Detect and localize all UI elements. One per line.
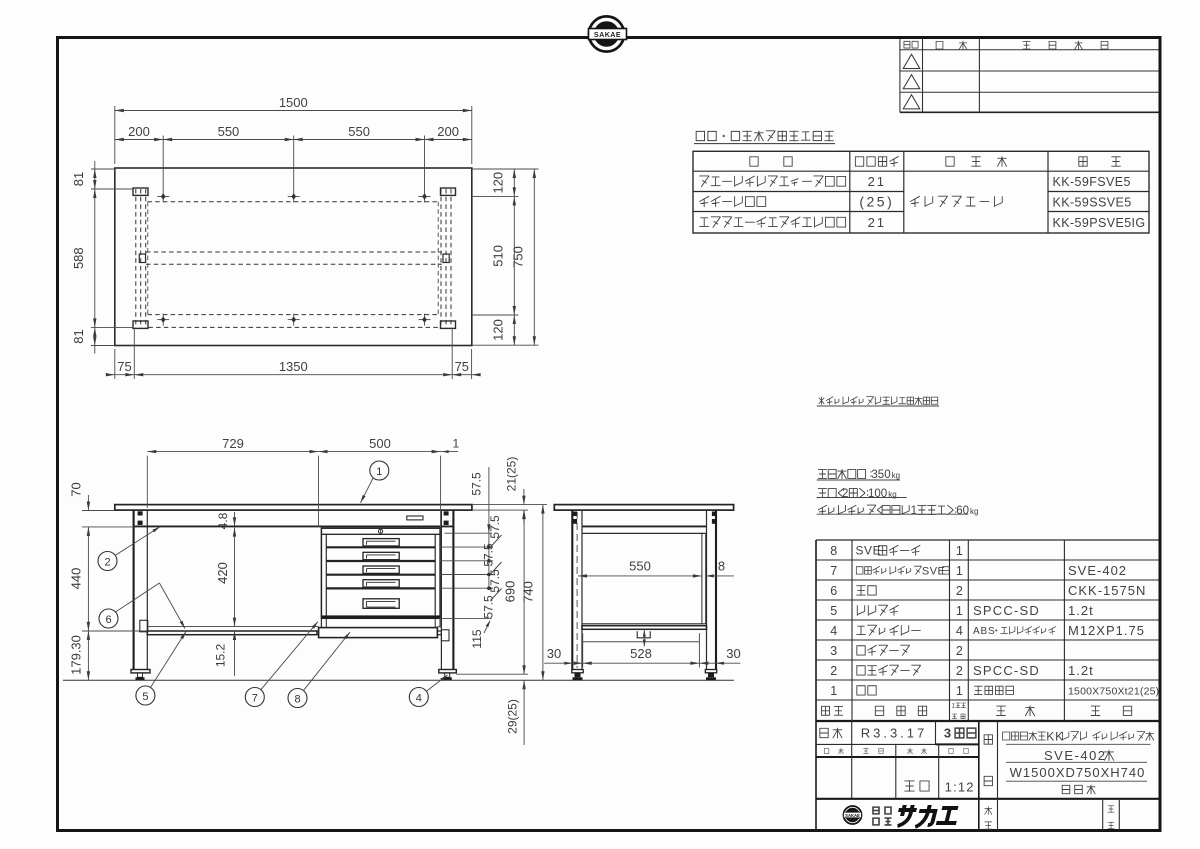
svg-text:550: 550	[629, 559, 651, 574]
svg-text:5: 5	[142, 691, 148, 703]
svg-text:7: 7	[252, 693, 258, 705]
svg-text:57.5: 57.5	[488, 515, 502, 539]
svg-text:588: 588	[71, 247, 86, 269]
svg-text:1:12: 1:12	[945, 780, 975, 795]
svg-text:6: 6	[105, 614, 111, 626]
svg-text:29(25): 29(25)	[505, 699, 519, 734]
svg-text:1: 1	[452, 437, 459, 451]
svg-text:8: 8	[294, 694, 300, 706]
svg-text:M12XP1.75: M12XP1.75	[1068, 623, 1145, 638]
svg-text:200: 200	[128, 124, 150, 139]
svg-text:5: 5	[830, 604, 837, 618]
svg-text:510: 510	[491, 245, 506, 267]
svg-text:81: 81	[71, 329, 86, 343]
svg-text:1500: 1500	[279, 95, 308, 110]
svg-text:57.5: 57.5	[470, 472, 484, 496]
svg-text:81: 81	[71, 172, 86, 186]
svg-text:500: 500	[369, 436, 391, 451]
svg-text:1.2t: 1.2t	[1068, 663, 1094, 678]
svg-text:729: 729	[222, 436, 244, 451]
svg-text:21(25): 21(25)	[505, 457, 519, 492]
svg-text:750: 750	[511, 246, 526, 268]
svg-text:528: 528	[630, 646, 652, 661]
svg-text:440: 440	[68, 568, 83, 590]
svg-text:ABS: ABS	[973, 626, 996, 637]
svg-text:SPCC-SD: SPCC-SD	[973, 603, 1040, 618]
svg-text:1: 1	[956, 564, 963, 578]
svg-text:21: 21	[868, 174, 886, 189]
svg-text:57.5: 57.5	[482, 595, 496, 619]
svg-text:1: 1	[830, 684, 837, 698]
svg-text:57.5: 57.5	[488, 569, 502, 593]
svg-text:550: 550	[218, 124, 240, 139]
svg-text:R3.3.17: R3.3.17	[861, 726, 928, 741]
svg-text:3: 3	[944, 725, 951, 740]
svg-text:4: 4	[830, 624, 837, 638]
svg-text:SVE: SVE	[922, 565, 945, 577]
svg-text:2: 2	[956, 584, 963, 598]
svg-text:1.2t: 1.2t	[1068, 603, 1094, 618]
svg-text:KK-59SSVE5: KK-59SSVE5	[1053, 195, 1132, 209]
svg-text:200: 200	[437, 124, 459, 139]
svg-text:1: 1	[956, 684, 963, 698]
svg-text:kg: kg	[892, 471, 900, 480]
svg-text:57.5: 57.5	[482, 543, 496, 567]
svg-text:4: 4	[956, 624, 963, 638]
svg-text:2: 2	[104, 557, 110, 569]
svg-text:1: 1	[376, 466, 382, 478]
svg-text:1: 1	[952, 703, 956, 710]
svg-text:15.2: 15.2	[214, 643, 228, 667]
svg-text:2: 2	[956, 664, 963, 678]
svg-text:21: 21	[868, 215, 886, 230]
svg-text:3: 3	[830, 644, 837, 658]
svg-text:30: 30	[547, 646, 561, 661]
svg-text:179.30: 179.30	[68, 635, 83, 675]
svg-text:SVE-402: SVE-402	[1068, 563, 1127, 578]
svg-text:KK: KK	[1046, 729, 1064, 743]
svg-text:KK-59FSVE5: KK-59FSVE5	[1053, 175, 1131, 189]
svg-text:SAKAE: SAKAE	[845, 813, 860, 818]
svg-text:120: 120	[491, 172, 506, 194]
svg-text:420: 420	[215, 562, 230, 584]
svg-text:100: 100	[868, 488, 887, 500]
svg-text:W1500XD750XH740: W1500XD750XH740	[1010, 765, 1146, 780]
svg-text:7: 7	[830, 564, 837, 578]
svg-text:1: 1	[911, 505, 917, 517]
svg-text:70: 70	[68, 482, 83, 496]
svg-text:60: 60	[956, 505, 969, 517]
svg-text:740: 740	[520, 581, 535, 603]
svg-text:KK-59PSVE5IG: KK-59PSVE5IG	[1053, 216, 1146, 230]
svg-text:SVE: SVE	[856, 544, 882, 558]
svg-text:1: 1	[956, 544, 963, 558]
svg-text:690: 690	[503, 581, 518, 603]
svg-text:kg: kg	[970, 507, 978, 516]
svg-text:1500X750Xt21(25): 1500X750Xt21(25)	[1068, 685, 1159, 697]
svg-text:6: 6	[830, 584, 837, 598]
svg-text:SPCC-SD: SPCC-SD	[973, 663, 1040, 678]
svg-text:75: 75	[455, 359, 469, 374]
svg-text:1350: 1350	[279, 359, 308, 374]
svg-text:350: 350	[871, 469, 890, 481]
svg-text:8: 8	[830, 544, 837, 558]
svg-text:30: 30	[726, 646, 740, 661]
svg-text:4.8: 4.8	[216, 512, 230, 529]
svg-text:550: 550	[348, 124, 370, 139]
svg-text:2: 2	[956, 644, 963, 658]
svg-text:SAKAE: SAKAE	[594, 30, 621, 39]
svg-text:SVE-402: SVE-402	[1044, 748, 1107, 763]
svg-text:8: 8	[718, 559, 725, 574]
svg-text:2: 2	[830, 664, 837, 678]
svg-text:120: 120	[491, 319, 506, 341]
svg-text:1: 1	[956, 604, 963, 618]
svg-text:4: 4	[416, 693, 422, 705]
svg-text:75: 75	[117, 359, 131, 374]
svg-text:(25): (25)	[859, 193, 894, 209]
svg-text:2: 2	[842, 488, 848, 500]
svg-text:CKK-1575N: CKK-1575N	[1068, 583, 1146, 598]
svg-text:115: 115	[470, 629, 484, 648]
